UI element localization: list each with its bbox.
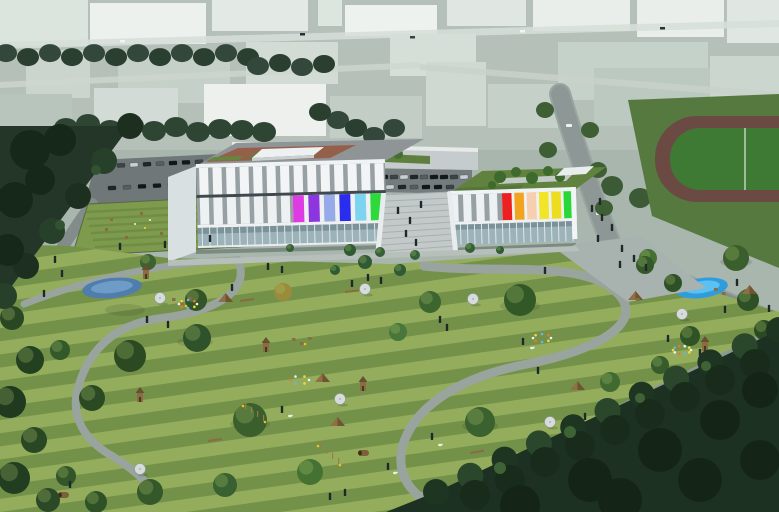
person-head [69,481,72,484]
tree-row [252,122,276,142]
parked-car [460,175,468,179]
conifer [530,447,560,477]
person-head [209,235,212,238]
tree-highlight [52,341,63,352]
person-figure [621,247,623,252]
conifer [700,400,740,440]
person-figure [405,232,407,237]
person-figure [619,263,621,268]
tree-highlight [331,266,337,272]
parked-car [169,161,177,165]
slalom-pole [251,407,252,413]
rooftop-tree [488,181,496,189]
child-figure [193,300,196,303]
child-figure [187,307,190,310]
tree-row [83,44,105,62]
facade-pillar [280,166,290,194]
facade-pillar [361,163,371,191]
parked-car [422,185,430,189]
person-figure [167,323,169,328]
person-head [544,267,547,270]
tree-highlight [359,256,367,264]
facade-pillar [320,165,330,193]
entrance-stairs [376,192,456,258]
person-head [415,239,418,242]
color-panel-left-3 [339,194,351,221]
person-head [736,279,739,282]
parasol-top [549,421,551,423]
rooftop-tree [543,166,553,176]
tree-highlight [506,286,524,304]
person-figure [164,243,166,248]
person-figure [281,268,283,273]
play-equipment [292,338,296,341]
conifer [638,428,682,472]
child-figure [547,340,550,343]
street-tree [595,200,613,216]
tree-highlight [421,292,433,304]
conifer [10,130,50,170]
tree-highlight [87,492,99,504]
play-equipment [722,292,726,295]
aerial-scene [0,0,779,512]
garden-dot [134,223,136,225]
dog-head [291,415,293,417]
person-head [367,274,370,277]
marker-cone [264,421,267,424]
car [660,27,665,30]
person-figure [431,435,433,440]
ghost-building [447,0,526,26]
tree-row [164,117,188,137]
person-figure [522,340,524,345]
tree-highlight [466,244,472,250]
facade-pillar [347,164,357,192]
tree-highlight [390,324,400,334]
child-figure [673,346,676,349]
facade-pillar [253,166,263,194]
parked-car [434,185,442,189]
ghost-building [637,0,724,37]
parked-car [398,185,406,189]
marker-cone [304,343,307,346]
person-figure [591,207,593,212]
person-figure [439,318,441,323]
facade-pillar [463,194,472,221]
facade-pillar [213,197,223,224]
person-head [591,205,594,208]
color-panel-left-2 [324,194,336,221]
play-equipment [300,342,304,345]
facade-pillar [307,165,317,193]
color-panel-right-3 [539,192,549,219]
conifer-highlight [494,462,506,474]
rooftop-tree [511,167,521,177]
parasol-top [159,297,161,299]
person-figure [768,307,770,312]
person-figure [119,245,121,250]
street-tree [536,102,554,118]
color-panel-left-0 [293,195,305,222]
play-tower-door [265,347,267,352]
conifer [670,382,700,412]
garden-equipment [125,236,128,239]
tree-highlight [23,428,37,442]
person-head [351,280,354,283]
person-head [431,433,434,436]
person-figure [611,226,613,231]
car [120,40,125,43]
parked-car [108,186,116,190]
facade-pillar [266,166,276,194]
color-panel-left-1 [308,195,320,222]
facade-pillar [227,197,237,224]
person-head [621,245,624,248]
tree-row [105,48,127,66]
facade-pillar [281,196,291,223]
tree-highlight [411,251,417,257]
person-figure [724,308,726,313]
play-equipment [308,337,312,340]
tree-highlight [0,464,18,482]
tree-highlight [652,357,662,367]
parasol-top [681,313,683,315]
tree-row [17,48,39,66]
tree-highlight [395,265,402,272]
street-tree [581,122,599,138]
conifer [460,480,490,510]
tree-highlight [756,321,767,332]
tree-row [142,121,166,141]
person-head [633,255,636,258]
facade-pillar [267,196,277,223]
child-figure [178,303,181,306]
tree-row [269,54,291,72]
person-head [387,463,390,466]
person-head [281,266,284,269]
garden-equipment [110,218,113,221]
child-figure [683,353,686,356]
parked-car [386,185,394,189]
person-figure [544,269,546,274]
tree-highlight [2,307,15,320]
person-figure [415,241,417,246]
color-panel-right-1 [514,193,524,220]
person-figure [231,286,233,291]
car [566,124,572,127]
child-figure [294,375,297,378]
person-head [599,198,602,201]
tree-highlight [81,386,95,400]
child-figure [547,334,550,337]
right-wing-facade [448,187,578,245]
conifer [117,113,143,139]
person-figure [54,258,56,263]
tree-row [39,44,61,62]
person-head [167,321,170,324]
tree-highlight [116,342,134,360]
child-figure [308,379,311,382]
garden-dot [149,219,151,221]
person-figure [420,203,422,208]
conifer-highlight [564,426,576,438]
ghost-building [318,0,342,26]
child-figure [534,340,537,343]
tree-highlight [275,284,285,294]
person-head [597,235,600,238]
tree-row [61,48,83,66]
architectural-rendering [0,0,779,512]
person-head [619,261,622,264]
slalom-pole [326,448,327,454]
facade-pillar [239,167,249,195]
conifer [740,440,779,480]
person-figure [645,266,647,271]
facade-pillar [199,168,209,196]
parked-car [430,175,438,179]
tree-highlight [139,480,153,494]
person-figure [209,237,211,242]
track-field [670,128,779,190]
child-figure [541,341,544,344]
tree-row [291,58,313,76]
parked-car [446,185,454,189]
tunnel-opening [358,451,362,456]
ghost-building [212,0,308,31]
parked-car [450,175,458,179]
conifer [25,165,55,195]
person-figure [601,216,603,221]
conifer-highlight [701,361,711,371]
tree-highlight [18,347,33,362]
tree-highlight [58,467,69,478]
person-figure [736,281,738,286]
parked-car [410,185,418,189]
play-tower-door [704,346,706,351]
parasol-top [364,288,366,290]
child-figure [290,379,293,382]
child-figure [550,337,553,340]
marker-cone [317,445,320,448]
car [520,30,525,33]
person-head [768,305,771,308]
color-panel-left-4 [355,194,367,221]
play-equipment [714,288,718,291]
person-figure [146,318,148,323]
slalom-pole [257,411,258,417]
person-head [405,230,408,233]
person-figure [281,408,283,413]
person-figure [597,237,599,242]
conifer [600,415,630,445]
person-head [54,256,57,259]
parked-car [130,163,138,167]
child-figure [534,334,537,337]
facade-pillar [293,165,303,193]
color-panel-right-2 [527,192,537,219]
facade-pillar [334,164,344,192]
marker-cone [242,405,245,408]
rooftop-tree [494,171,506,183]
facade-pillar [212,167,222,195]
tree-row [309,103,331,121]
tree-row [208,119,232,139]
person-figure [69,483,71,488]
slalom-pole [263,415,264,421]
person-head [446,324,449,327]
rooftop-tree [526,172,538,184]
parasol-top [339,398,341,400]
slalom-pole [338,458,339,464]
garden-dot [144,227,146,229]
tree-row [149,48,171,66]
conifer-highlight [55,220,65,230]
person-head [439,316,442,319]
parked-car [182,160,190,164]
person-head [699,349,702,352]
child-figure [196,303,199,306]
tree-row [186,122,210,142]
person-figure [344,491,346,496]
tree-highlight [215,474,228,487]
child-figure [532,337,535,340]
person-head [119,243,122,246]
garden-equipment [105,228,108,231]
color-panel-right-0 [502,193,512,220]
person-head [164,241,167,244]
person-head [522,338,525,341]
child-figure [678,345,681,348]
parked-car [400,175,408,179]
person-head [645,264,648,267]
play-tower-door [145,274,147,279]
person-head [537,367,540,370]
parked-car [143,162,151,166]
child-figure [303,375,306,378]
child-figure [193,306,196,309]
person-head [267,263,270,266]
tree-highlight [725,246,739,260]
tree-row [215,44,237,62]
garden-equipment [160,232,163,235]
play-tower-door [139,397,141,402]
person-figure [387,465,389,470]
street-tree [539,142,557,158]
person-head [667,335,670,338]
car [410,36,415,39]
person-head [61,270,64,273]
parked-car [390,175,398,179]
slalom-pole [320,443,321,449]
parked-car [410,175,418,179]
tunnel-opening [58,493,62,498]
dog-head [533,347,535,349]
conifer [65,183,91,209]
person-head [344,489,347,492]
color-panel-right-4 [551,191,561,218]
person-figure [409,219,411,224]
child-figure [673,351,676,354]
tree-row [127,44,149,62]
tree-row [193,48,215,66]
tree-highlight [682,327,693,338]
street-tree [601,176,623,196]
person-head [281,406,284,409]
person-figure [537,369,539,374]
dog-head [396,472,398,474]
tree-highlight [665,275,675,285]
tree-highlight [602,373,613,384]
person-head [420,201,423,204]
marker-cone [185,305,188,308]
play-equipment [636,298,640,301]
conifer [742,372,778,408]
conifer [635,399,665,429]
child-figure [688,346,691,349]
tree-row [171,44,193,62]
tree-highlight [38,489,51,502]
person-head [397,207,400,210]
person-figure [351,282,353,287]
tree-highlight [345,245,352,252]
person-head [409,217,412,220]
conifer [678,458,722,502]
facade-pillar [476,194,485,221]
person-figure [584,415,586,420]
person-figure [667,337,669,342]
tree-row [247,57,269,75]
person-head [584,413,587,416]
tree-highlight [287,244,291,248]
dog-head [441,444,443,446]
garden-equipment [140,212,143,215]
parked-car [440,175,448,179]
person-head [329,493,332,496]
tree-highlight [467,409,484,426]
left-wing-facade [196,159,387,248]
tree-row [383,119,405,137]
parasol-top [472,298,474,300]
person-figure [43,292,45,297]
person-head [380,277,383,280]
person-figure [329,495,331,500]
person-head [724,306,727,309]
track-centerline [744,128,746,190]
parked-car [123,185,131,189]
tree-highlight [299,460,313,474]
tree-row [313,55,335,73]
parked-car [153,183,161,187]
child-figure [303,382,306,385]
left-gable-wall [168,166,196,262]
child-figure [180,300,183,303]
tree-highlight [185,325,200,340]
tree-highlight [141,255,150,264]
marker-cone [339,464,342,467]
child-figure [180,306,183,309]
facade-pillar [240,197,250,224]
child-figure [294,382,297,385]
person-head [146,316,149,319]
person-figure [61,272,63,277]
child-figure [672,349,675,352]
play-tower-door [362,386,364,391]
person-figure [599,200,601,205]
child-figure [690,349,693,352]
facade-pillar [226,167,236,195]
person-figure [446,326,448,331]
tree-row [230,120,254,140]
